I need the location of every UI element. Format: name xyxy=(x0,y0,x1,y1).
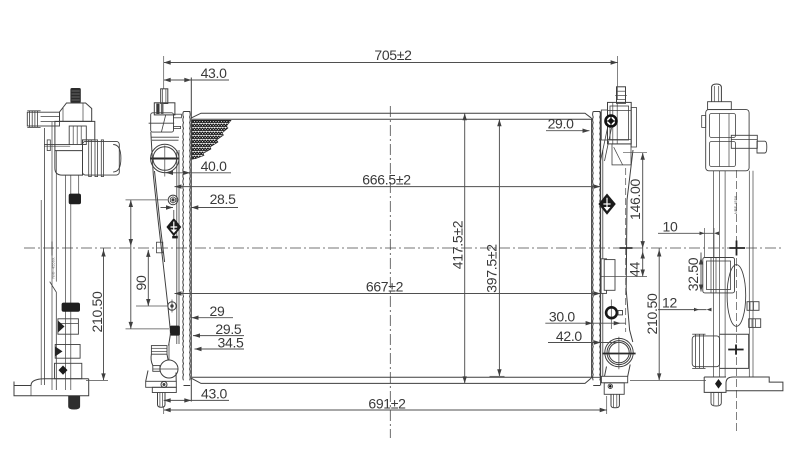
svg-text:43.0: 43.0 xyxy=(201,65,228,81)
svg-text:12: 12 xyxy=(662,295,677,311)
svg-text:30.0: 30.0 xyxy=(549,309,576,325)
svg-text:397.5±2: 397.5±2 xyxy=(483,244,499,293)
svg-text:210.50: 210.50 xyxy=(644,293,660,335)
svg-text:40.0: 40.0 xyxy=(201,158,228,174)
svg-text:44: 44 xyxy=(627,262,643,277)
svg-text:29.0: 29.0 xyxy=(548,115,575,131)
svg-text:667±2: 667±2 xyxy=(366,278,404,294)
svg-text:210.50: 210.50 xyxy=(89,291,105,333)
svg-text:42.0: 42.0 xyxy=(556,328,583,344)
svg-text:705±2: 705±2 xyxy=(374,47,412,63)
svg-text:691±2: 691±2 xyxy=(368,396,406,412)
svg-text:90: 90 xyxy=(133,275,149,290)
svg-text:146.00: 146.00 xyxy=(627,178,643,220)
svg-text:10: 10 xyxy=(663,218,678,234)
svg-text:666.5±2: 666.5±2 xyxy=(362,171,411,187)
svg-text:32.50: 32.50 xyxy=(685,257,701,291)
svg-text:28.5: 28.5 xyxy=(210,191,237,207)
svg-text:NRF-4556: NRF-4556 xyxy=(733,195,738,214)
svg-text:417.5±2: 417.5±2 xyxy=(450,220,466,269)
svg-text:29: 29 xyxy=(210,303,225,319)
svg-text:34.5: 34.5 xyxy=(217,334,244,350)
svg-text:NRF-4556X: NRF-4556X xyxy=(50,257,55,278)
svg-text:43.0: 43.0 xyxy=(201,385,228,401)
